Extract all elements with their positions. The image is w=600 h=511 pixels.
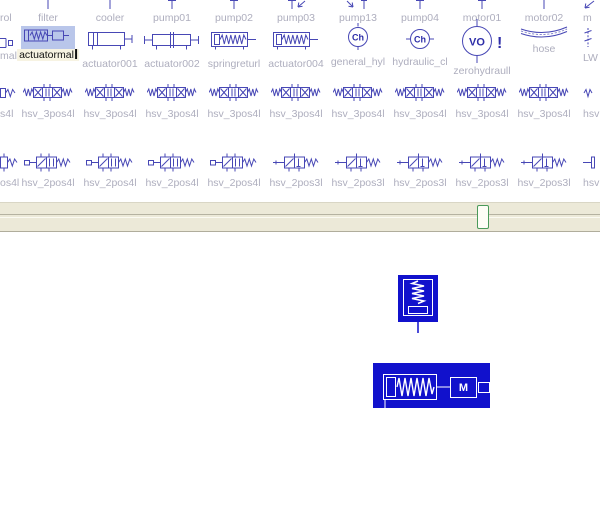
palette-item-hsv-2pos3l[interactable]: hsv_2pos3l bbox=[327, 0, 389, 202]
palette-item-hsv[interactable]: hsv bbox=[583, 0, 600, 202]
valve-2pos3-icon bbox=[451, 150, 513, 172]
palette-scrollbar[interactable] bbox=[0, 202, 600, 232]
scrollbar-thumb[interactable] bbox=[477, 205, 489, 229]
valve-2pos3-icon bbox=[389, 150, 451, 172]
palette-item-label: hsv_2pos3l bbox=[507, 177, 581, 189]
application-window: rolfiltercoolerpump01pump02pump03pump13p… bbox=[0, 0, 600, 511]
palette-item-hsv-2pos4l[interactable]: hsv_2pos4l bbox=[203, 0, 265, 202]
palette-item-hsv-2pos4l[interactable]: hsv_2pos4l bbox=[79, 0, 141, 202]
palette-item-hsv-2pos4l[interactable]: hsv_2pos4l bbox=[17, 0, 79, 202]
valve-2pos4-icon bbox=[141, 150, 203, 172]
symbol-body bbox=[373, 363, 490, 408]
palette-item-hsv-2pos3l[interactable]: hsv_2pos3l bbox=[389, 0, 451, 202]
palette-item-label: hsv bbox=[583, 177, 600, 189]
palette-item-hsv-2pos4l[interactable]: hsv_2pos4l bbox=[141, 0, 203, 202]
valve-2pos4-icon bbox=[79, 150, 141, 172]
palette-item-hsv-2pos3l[interactable]: hsv_2pos3l bbox=[513, 0, 575, 202]
valve-2pos3-icon bbox=[513, 150, 575, 172]
scrollbar-track[interactable] bbox=[0, 214, 600, 218]
palette-item-hsv-2pos3l[interactable]: hsv_2pos3l bbox=[451, 0, 513, 202]
valve-2pos3-icon bbox=[265, 150, 327, 172]
component-palette: rolfiltercoolerpump01pump02pump03pump13p… bbox=[0, 0, 600, 202]
valve-2pos4-icon bbox=[17, 150, 79, 172]
palette-item-hsv-2pos3l[interactable]: hsv_2pos3l bbox=[265, 0, 327, 202]
schematic-canvas[interactable]: M BBS.IYEYA.CN 爱液压论坛 bbox=[0, 233, 600, 511]
motor-label: M bbox=[459, 382, 468, 394]
valve-2pos3-icon bbox=[327, 150, 389, 172]
valve-2pos4-icon bbox=[203, 150, 265, 172]
stub-left-fragment-icon bbox=[583, 150, 600, 172]
spring-return-actuator-symbol[interactable] bbox=[393, 270, 443, 336]
cylinder-motor-assembly-symbol[interactable]: M bbox=[368, 358, 498, 420]
